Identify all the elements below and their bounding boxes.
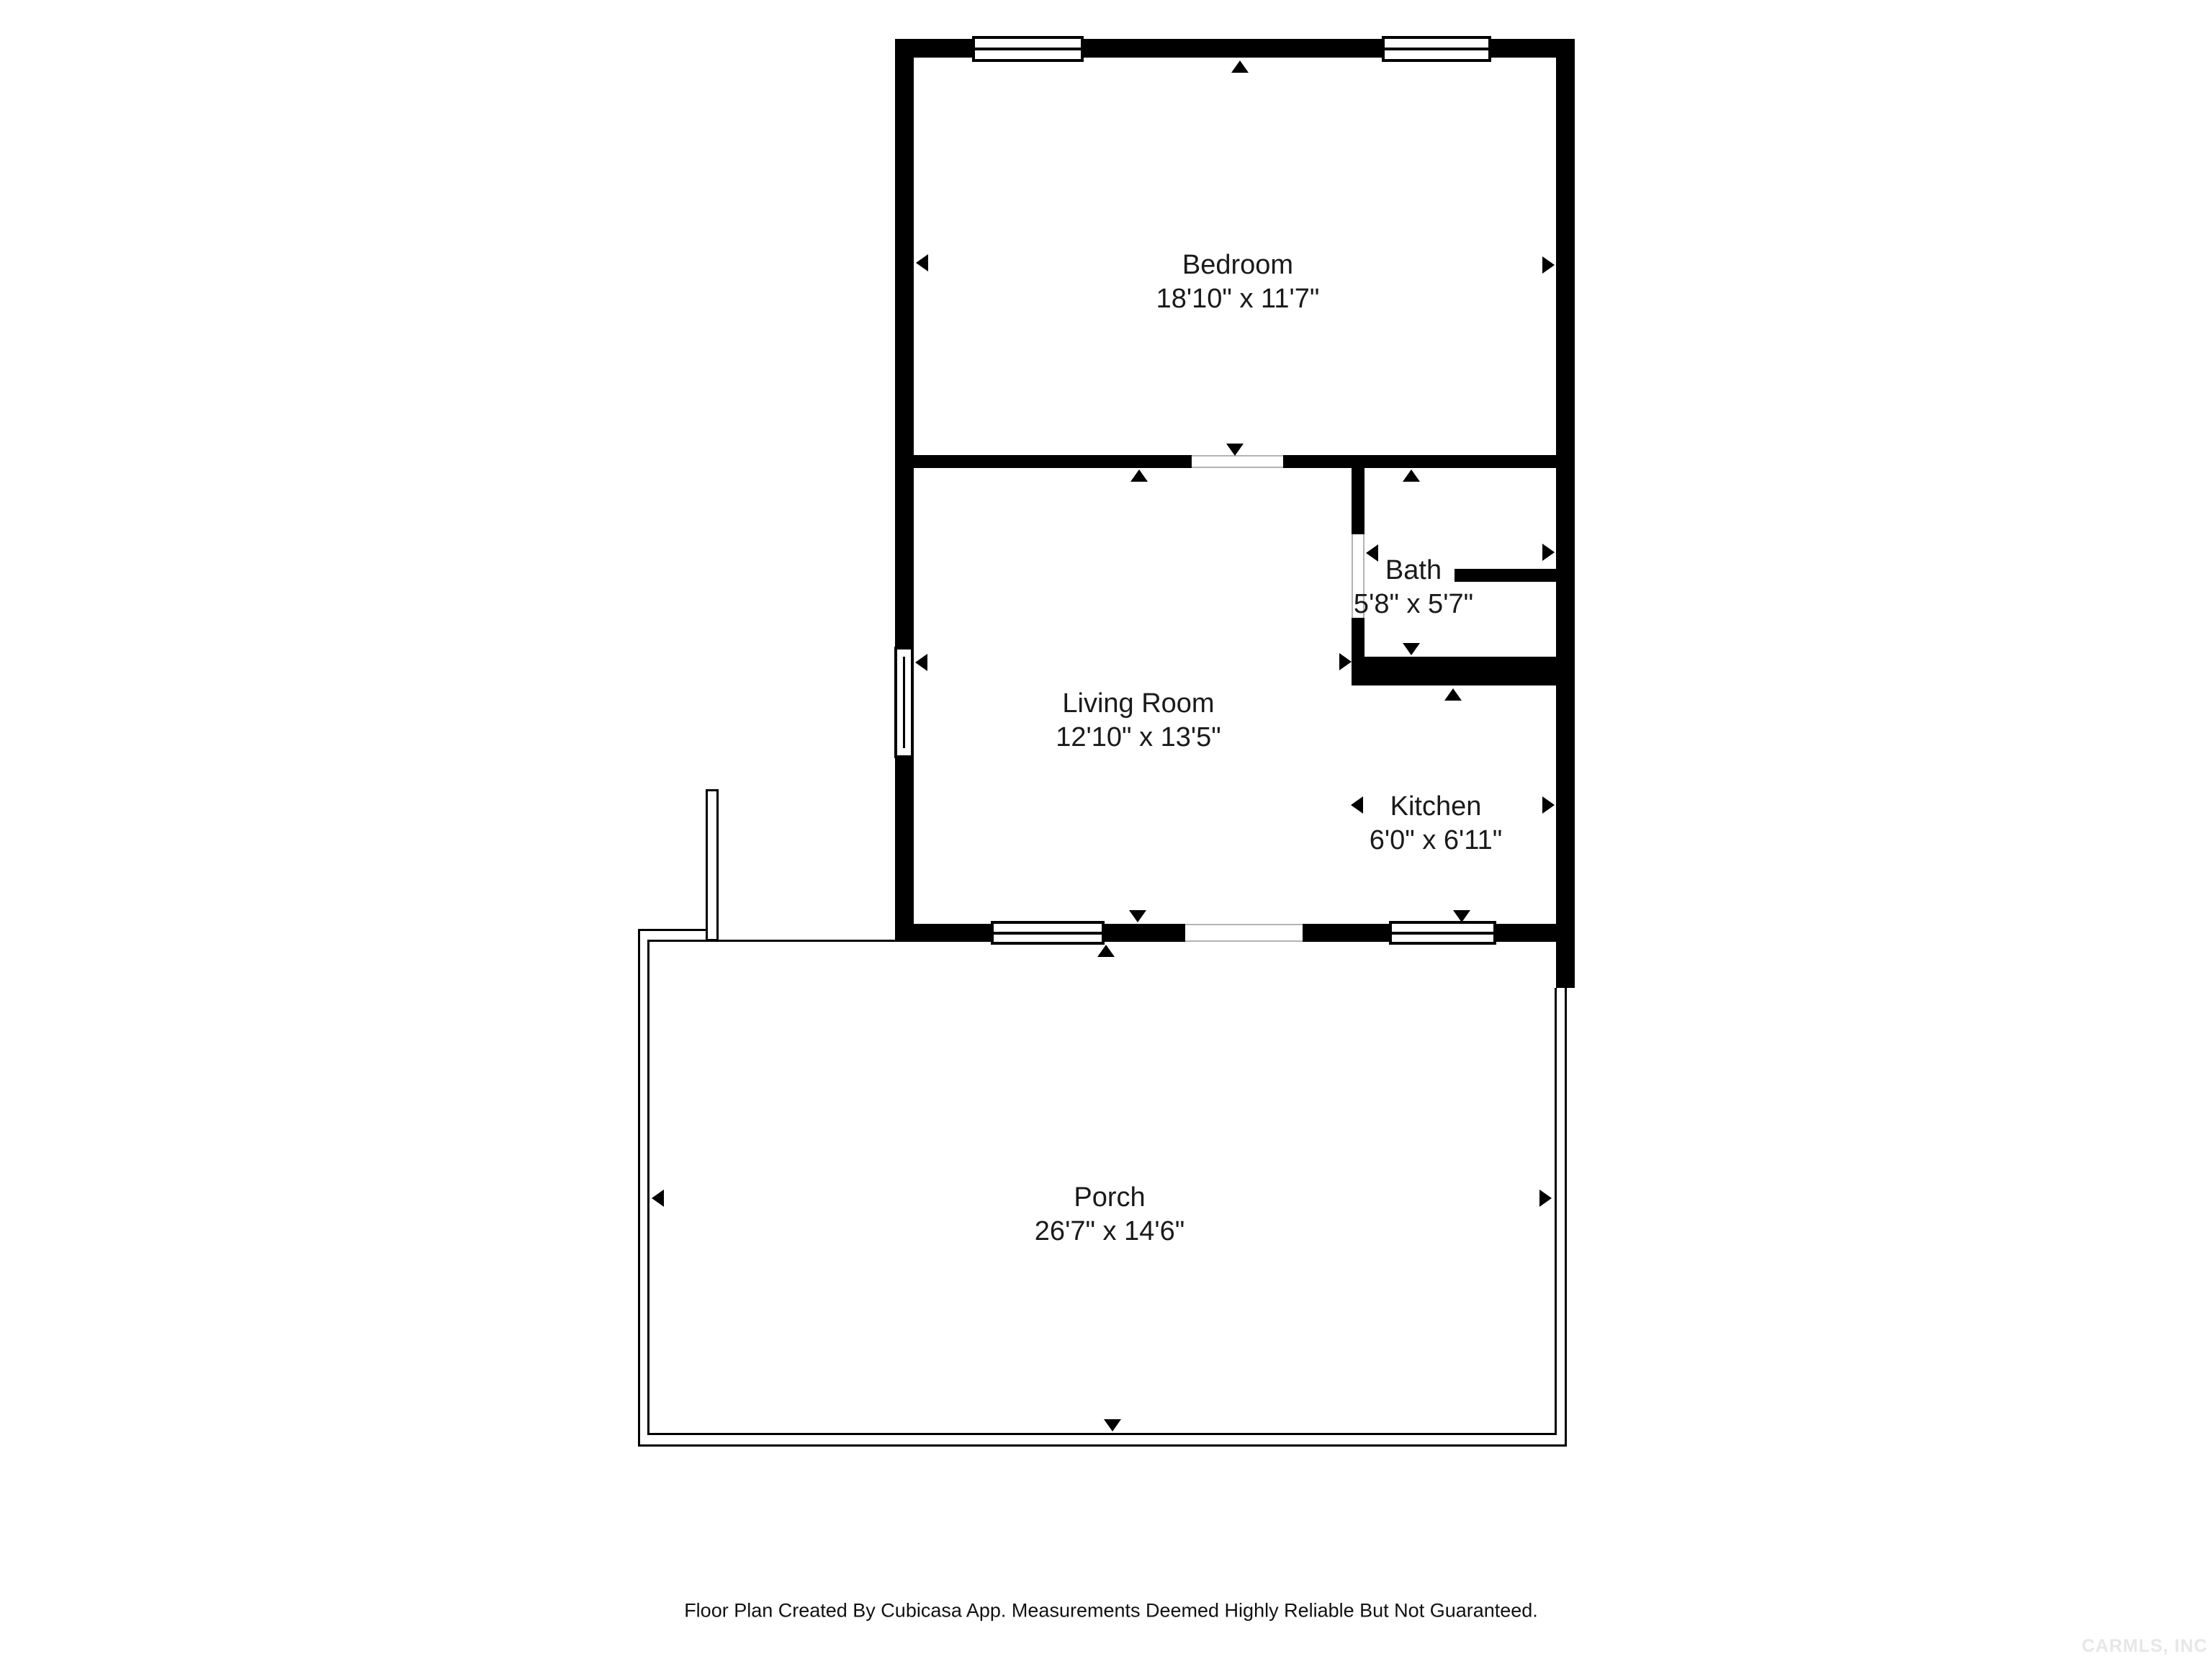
- porch-step-rail: [706, 789, 719, 941]
- wall-bath-kitchen-thick: [1352, 657, 1556, 685]
- porch-line-outer-left: [638, 929, 640, 1447]
- window-pane-line: [994, 932, 1102, 935]
- dimension-arrow-up-icon: [1097, 945, 1115, 957]
- wall-bedroom-divider-right: [1283, 455, 1575, 468]
- dimension-arrow-up-icon: [1231, 60, 1249, 73]
- room-label-living-room: Living Room 12'10" x 13'5": [1056, 687, 1221, 755]
- room-name: Living Room: [1056, 687, 1221, 721]
- door-opening-bedroom: [1192, 455, 1283, 468]
- window-pane-line: [903, 657, 905, 748]
- porch-line-inner-top: [647, 940, 895, 942]
- porch-line-inner-bottom: [647, 1433, 1557, 1435]
- wall-bottom-seg-c: [1303, 924, 1389, 942]
- dimension-arrow-left-icon: [916, 254, 928, 271]
- window-bedroom-left: [972, 36, 1084, 62]
- room-label-kitchen: Kitchen 6'0" x 6'11": [1370, 790, 1502, 858]
- room-dimensions: 12'10" x 13'5": [1056, 721, 1221, 755]
- room-dimensions: 18'10" x 11'7": [1156, 282, 1320, 316]
- wall-bath-left-lower: [1352, 618, 1364, 657]
- wall-left-exterior: [895, 39, 914, 942]
- dimension-arrow-up-icon: [1130, 469, 1148, 482]
- window-kitchen-bottom: [1389, 921, 1496, 945]
- porch-step-notch-line: [638, 929, 708, 931]
- dimension-arrow-right-icon: [1339, 653, 1352, 670]
- footer-disclaimer: Floor Plan Created By Cubicasa App. Meas…: [684, 1600, 1538, 1622]
- room-label-bath: Bath 5'8" x 5'7": [1354, 554, 1473, 621]
- room-name: Bedroom: [1156, 248, 1320, 282]
- room-name: Kitchen: [1370, 790, 1502, 824]
- room-label-porch: Porch 26'7" x 14'6": [1035, 1181, 1184, 1249]
- window-pane-line: [1392, 932, 1493, 935]
- dimension-arrow-up-icon: [1403, 469, 1420, 482]
- window-pane-line: [1385, 48, 1488, 50]
- porch-line-inner-left: [647, 941, 649, 1435]
- dimension-arrow-right-icon: [1542, 544, 1555, 561]
- watermark-text: CARMLS, INC: [2082, 1636, 2208, 1657]
- window-pane-line: [975, 48, 1081, 50]
- wall-right-stub: [1556, 942, 1575, 988]
- wall-right-exterior: [1556, 39, 1575, 942]
- dimension-arrow-down-icon: [1403, 643, 1420, 655]
- dimension-arrow-left-icon: [652, 1190, 664, 1207]
- window-bedroom-right: [1382, 36, 1491, 62]
- dimension-arrow-right-icon: [1542, 256, 1555, 274]
- window-living-bottom: [991, 921, 1105, 945]
- dimension-arrow-right-icon: [1542, 796, 1555, 814]
- room-dimensions: 6'0" x 6'11": [1370, 824, 1502, 858]
- room-name: Bath: [1354, 554, 1473, 588]
- dimension-arrow-right-icon: [1539, 1190, 1552, 1207]
- dimension-arrow-down-icon: [1129, 910, 1146, 922]
- dimension-arrow-left-icon: [915, 654, 927, 671]
- porch-line-inner-right: [1555, 988, 1557, 1435]
- wall-bottom-seg-b: [1105, 924, 1185, 942]
- wall-bedroom-divider-left: [895, 455, 1192, 468]
- dimension-arrow-down-icon: [1453, 910, 1470, 922]
- room-dimensions: 26'7" x 14'6": [1035, 1215, 1184, 1249]
- porch-line-outer-right: [1565, 988, 1567, 1447]
- door-opening-entry: [1185, 924, 1303, 942]
- dimension-arrow-left-icon: [1351, 796, 1363, 814]
- wall-bottom-seg-a: [895, 924, 991, 942]
- wall-bath-left-upper: [1352, 468, 1364, 534]
- wall-bottom-seg-d: [1496, 924, 1575, 942]
- room-dimensions: 5'8" x 5'7": [1354, 588, 1473, 621]
- room-label-bedroom: Bedroom 18'10" x 11'7": [1156, 248, 1320, 316]
- dimension-arrow-down-icon: [1226, 444, 1244, 456]
- room-name: Porch: [1035, 1181, 1184, 1215]
- dimension-arrow-down-icon: [1104, 1419, 1121, 1431]
- dimension-arrow-up-icon: [1444, 688, 1462, 701]
- porch-line-outer-bottom: [638, 1444, 1567, 1447]
- window-living-left: [894, 647, 914, 758]
- floor-plan-canvas: Bedroom 18'10" x 11'7" Living Room 12'10…: [0, 0, 2212, 1659]
